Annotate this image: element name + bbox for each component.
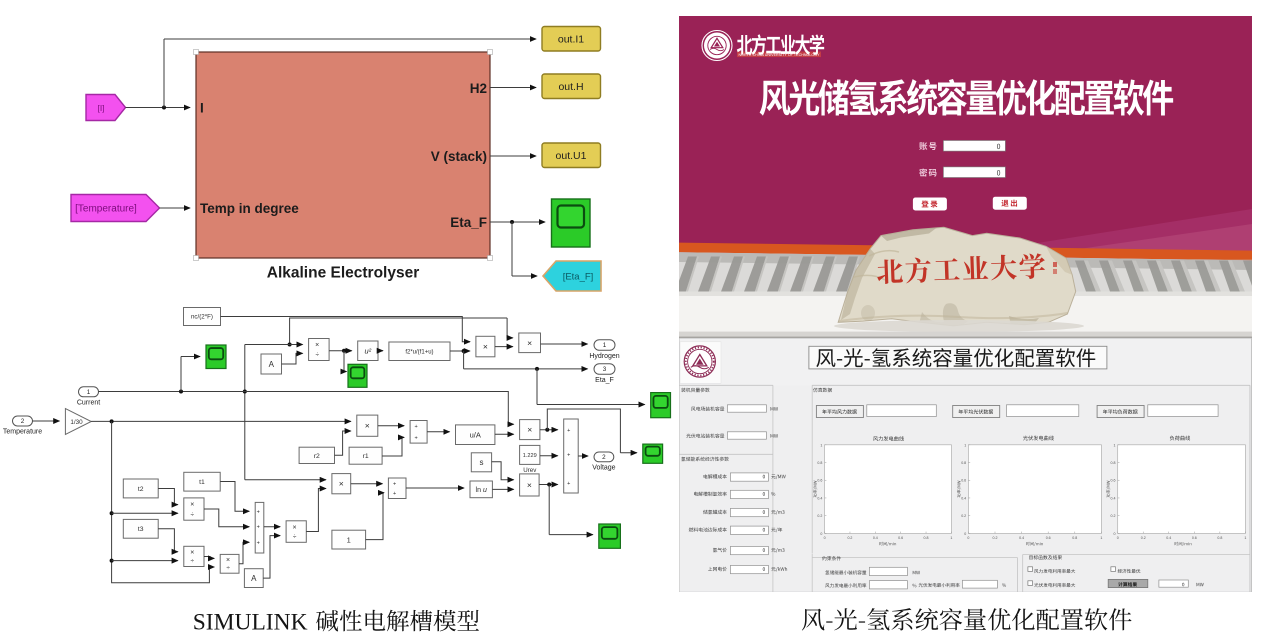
svg-text:SIMULINK: SIMULINK [193,610,308,636]
